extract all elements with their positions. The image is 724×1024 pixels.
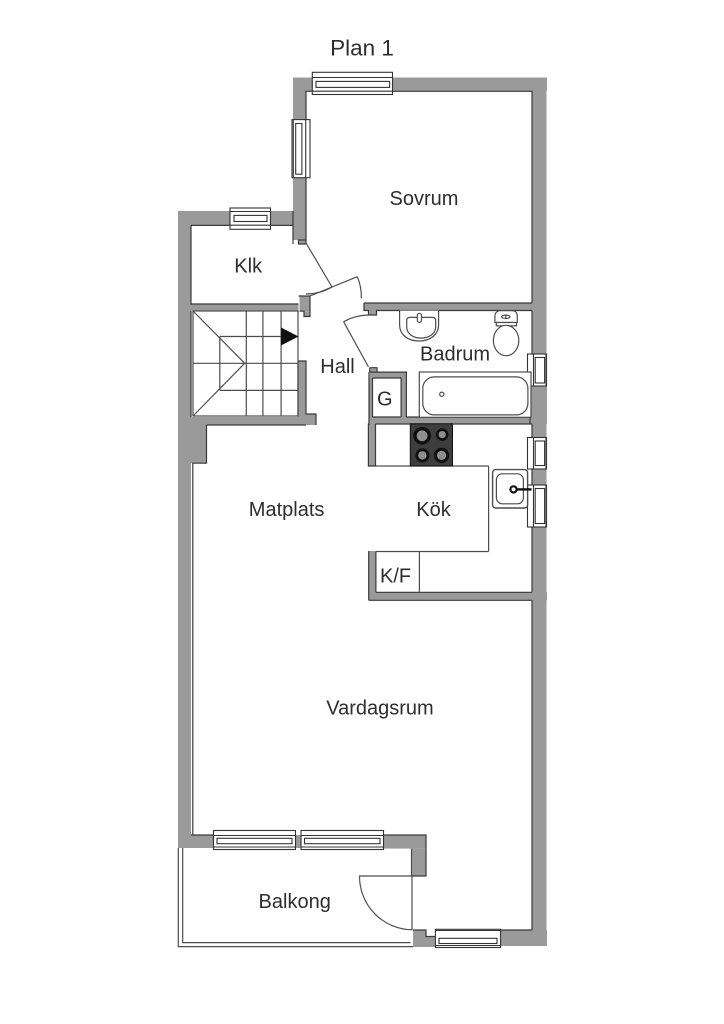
svg-text:Vardagsrum: Vardagsrum	[326, 697, 433, 719]
svg-text:G: G	[377, 388, 393, 410]
svg-text:Plan 1: Plan 1	[330, 36, 394, 61]
svg-text:Klk: Klk	[234, 256, 263, 278]
svg-text:Kök: Kök	[416, 499, 451, 521]
svg-text:Matplats: Matplats	[249, 499, 325, 521]
svg-text:Hall: Hall	[320, 356, 354, 378]
svg-text:Sovrum: Sovrum	[390, 188, 459, 210]
svg-text:K/F: K/F	[380, 566, 411, 588]
svg-text:Balkong: Balkong	[259, 891, 331, 913]
svg-text:Badrum: Badrum	[420, 344, 490, 366]
